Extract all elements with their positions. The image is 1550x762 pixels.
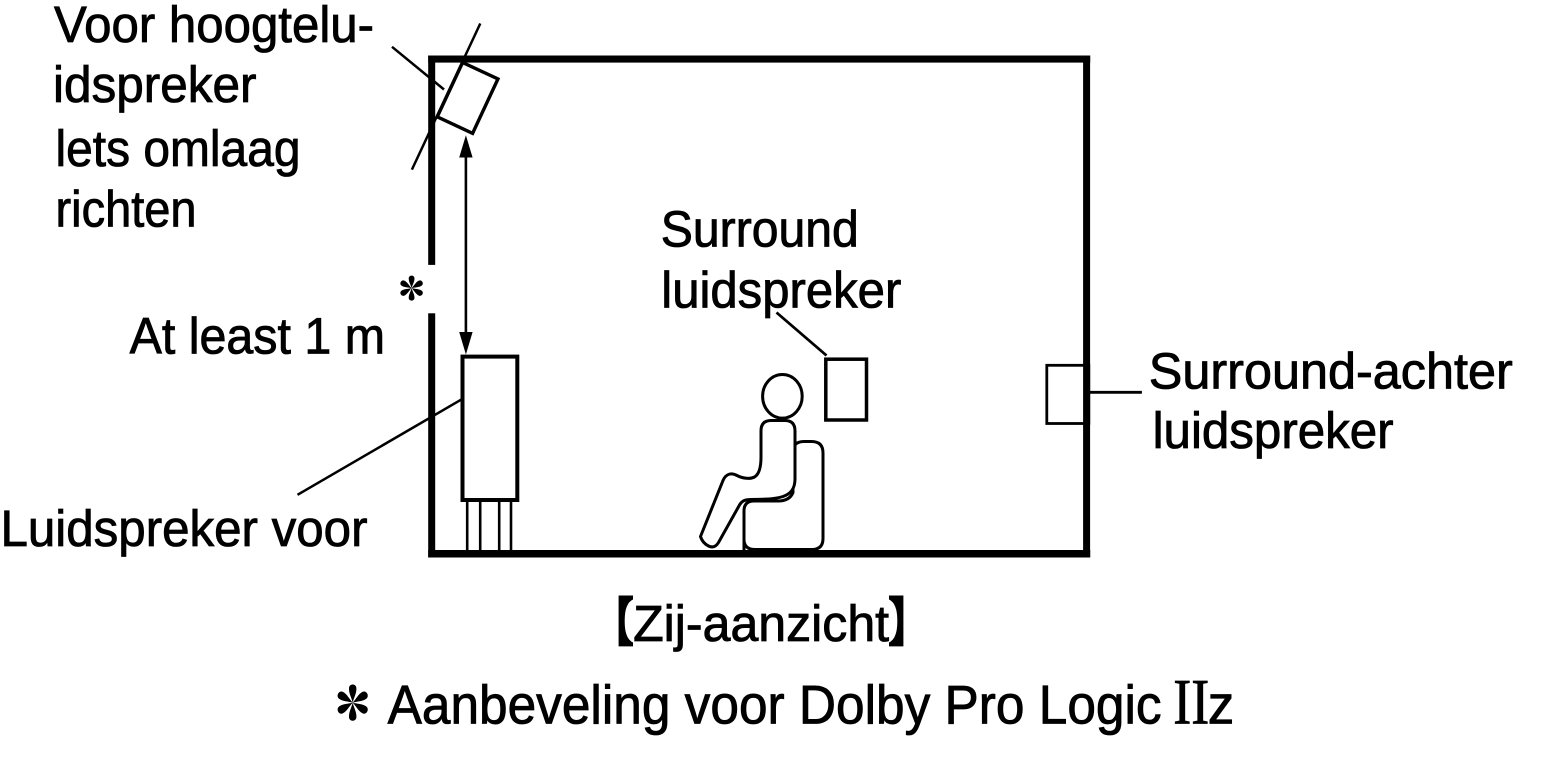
svg-text:At least 1 m: At least 1 m <box>130 308 385 365</box>
svg-text:z: z <box>1208 674 1235 736</box>
svg-text:lets omlaag: lets omlaag <box>56 120 301 177</box>
svg-text:Surround: Surround <box>661 201 859 258</box>
svg-text:luidspreker: luidspreker <box>1153 402 1394 459</box>
svg-text:Surround-achter: Surround-achter <box>1149 343 1513 400</box>
svg-text:II: II <box>1173 667 1209 739</box>
svg-text:Aanbeveling voor Dolby Pro Log: Aanbeveling voor Dolby Pro Logic <box>388 674 1162 736</box>
svg-text:Luidspreker voor: Luidspreker voor <box>1 500 368 557</box>
svg-text:Zij-aanzicht: Zij-aanzicht <box>633 595 889 652</box>
svg-text:Voor hoogtelu-: Voor hoogtelu- <box>54 0 374 53</box>
svg-text:idspreker: idspreker <box>53 56 257 113</box>
svg-text:richten: richten <box>56 181 197 238</box>
svg-text:luidspreker: luidspreker <box>661 261 901 318</box>
